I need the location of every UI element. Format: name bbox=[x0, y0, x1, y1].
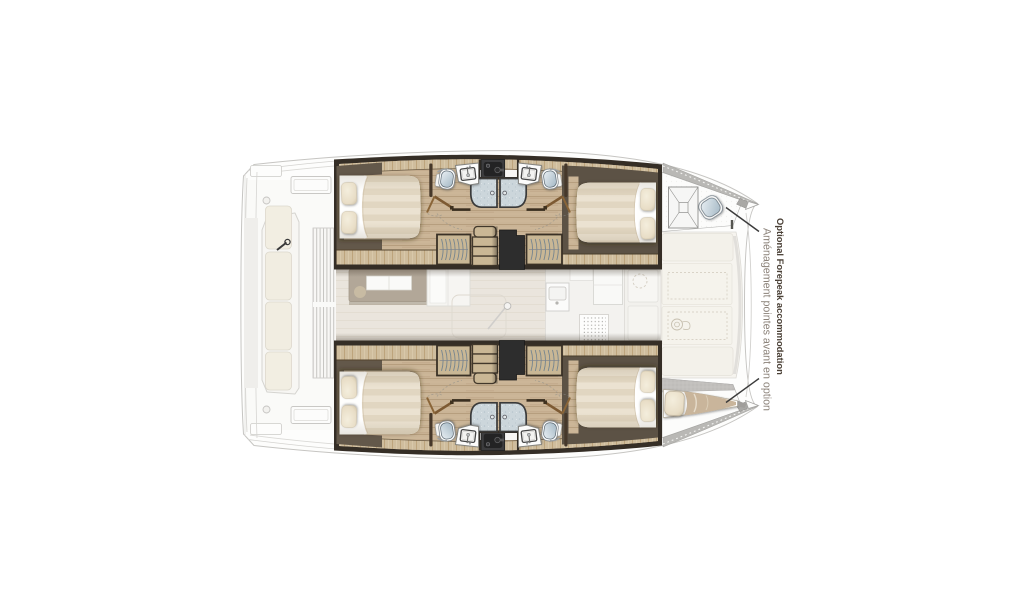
svg-text:Optional Forepeak accommodatio: Optional Forepeak accommodation bbox=[775, 218, 786, 375]
svg-text:Aménagement pointes avant en o: Aménagement pointes avant en option bbox=[761, 228, 773, 411]
